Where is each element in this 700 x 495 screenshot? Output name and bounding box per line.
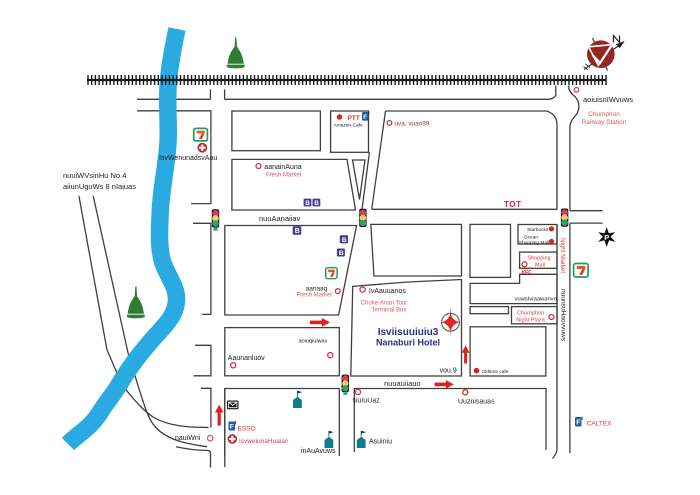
svg-text:F: F <box>230 424 234 431</box>
svg-text:Isviisuuiuiu3: Isviisuuiuiu3 <box>378 327 439 338</box>
svg-text:P: P <box>604 233 609 242</box>
svg-text:nuuiWVsinHu No.4: nuuiWVsinHu No.4 <box>63 171 126 180</box>
svg-text:nauiWni: nauiWni <box>175 435 201 442</box>
svg-text:IsvweiunaHuaian: IsvweiunaHuaian <box>239 438 289 445</box>
svg-text:siuIuUaz: siuIuUaz <box>353 398 381 405</box>
svg-text:aiiunUguWs 8 nIaiuas: aiiunUguWs 8 nIaiuas <box>63 182 136 191</box>
svg-text:F: F <box>363 114 367 121</box>
svg-text:nuuAanaiiav: nuuAanaiiav <box>259 214 301 223</box>
svg-text:vou.9: vou.9 <box>440 368 457 375</box>
svg-text:aoiuisnIWvuws: aoiuisnIWvuws <box>583 95 633 104</box>
svg-text:Asuiniu: Asuiniu <box>369 439 392 446</box>
svg-text:F: F <box>576 419 581 426</box>
svg-text:CALTEX: CALTEX <box>587 421 612 428</box>
svg-text:Railway Station: Railway Station <box>582 119 627 126</box>
svg-text:B: B <box>295 228 300 235</box>
svg-text:aanaaq: aanaaq <box>306 286 328 293</box>
svg-text:Fresh Market: Fresh Market <box>297 293 333 299</box>
svg-text:Starbucks: Starbucks <box>527 227 549 233</box>
svg-text:Amazon-Cafe: Amazon-Cafe <box>334 123 364 129</box>
svg-text:Oldtime cafe: Oldtime cafe <box>482 369 509 375</box>
svg-text:B: B <box>305 200 310 207</box>
svg-text:inAuAvuws: inAuAvuws <box>301 448 336 455</box>
svg-text:ESSO: ESSO <box>238 426 256 433</box>
svg-text:KFC: KFC <box>522 270 533 276</box>
svg-text:Night Plaza: Night Plaza <box>516 318 545 324</box>
svg-text:Terminal Bus: Terminal Bus <box>372 308 407 314</box>
svg-text:TOT: TOT <box>504 200 522 209</box>
svg-text:uva. vuao99: uva. vuao99 <box>395 121 430 128</box>
svg-text:vuwsIviaawanvn: vuwsIviaawanvn <box>515 297 557 303</box>
svg-text:Choke-Anan Tour: Choke-Anan Tour <box>361 301 408 307</box>
svg-text:Chumphon: Chumphon <box>517 311 544 317</box>
svg-text:Shopping Mall: Shopping Mall <box>519 240 549 246</box>
svg-text:Chumphon: Chumphon <box>588 111 620 118</box>
svg-text:Uuznisauas: Uuznisauas <box>458 399 495 406</box>
svg-text:Fresh Market: Fresh Market <box>266 173 302 179</box>
svg-text:Ocean: Ocean <box>524 235 538 241</box>
svg-text:Aaunanluov: Aaunanluov <box>228 355 265 362</box>
svg-text:aanainAuna: aanainAuna <box>264 164 301 171</box>
svg-text:Mall: Mall <box>535 263 545 269</box>
svg-text:Nanaburi Hotel: Nanaburi Hotel <box>376 338 440 348</box>
svg-text:Shopping: Shopping <box>527 256 550 262</box>
svg-text:nuunsuHaovvuws: nuunsuHaovvuws <box>560 289 567 342</box>
svg-text:aoiuqiuiwav: aoiuqiuiwav <box>299 339 328 345</box>
svg-text:PTT: PTT <box>348 115 360 122</box>
svg-text:Night Market: Night Market <box>559 238 566 273</box>
svg-text:IvAauuanos: IvAauuanos <box>369 288 406 295</box>
svg-text:B: B <box>342 237 347 244</box>
svg-text:nuuauiiauo: nuuauiiauo <box>384 379 421 388</box>
svg-text:IsvWenunadsvAau: IsvWenunadsvAau <box>159 155 217 162</box>
svg-text:B: B <box>314 200 319 207</box>
svg-text:B: B <box>339 250 344 257</box>
